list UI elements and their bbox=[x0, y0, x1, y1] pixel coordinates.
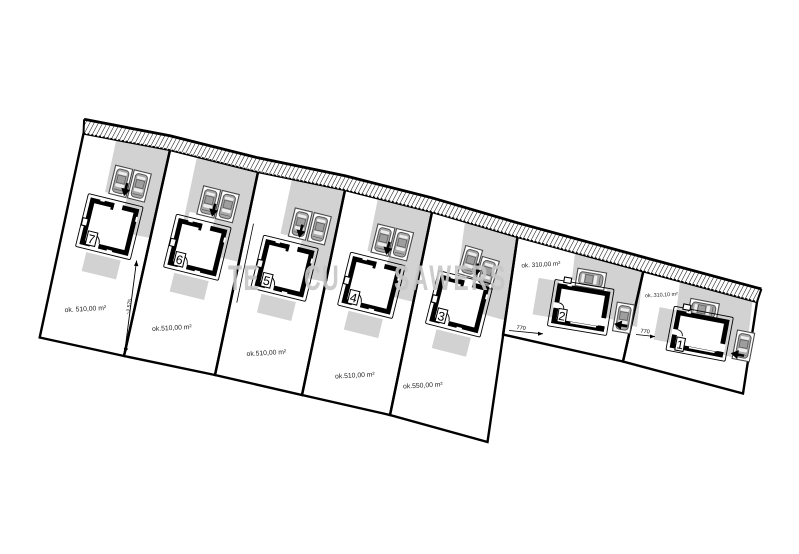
svg-text:770: 770 bbox=[516, 325, 526, 332]
svg-text:770: 770 bbox=[640, 329, 650, 336]
svg-text:SAWERS: SAWERS bbox=[394, 259, 508, 298]
svg-text:CU: CU bbox=[304, 259, 340, 298]
svg-text:TE: TE bbox=[228, 259, 260, 298]
